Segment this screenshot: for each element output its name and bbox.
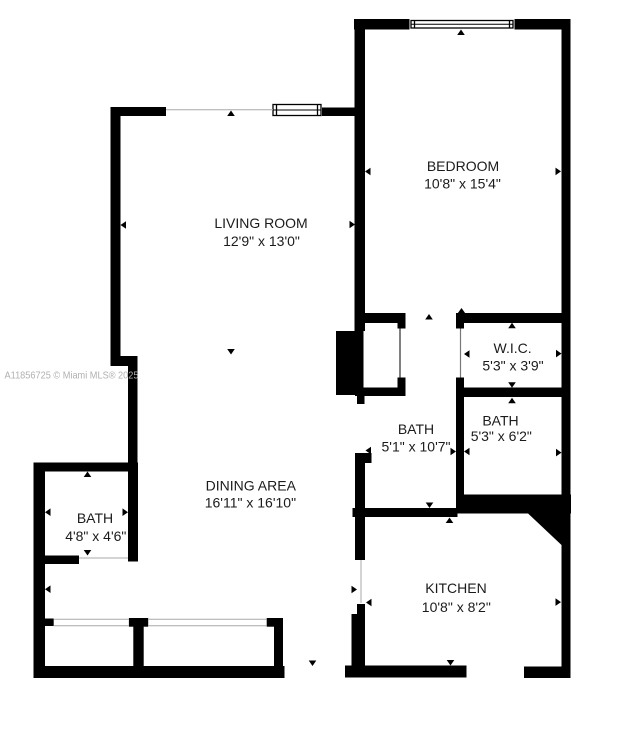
svg-text:5'3" x 3'9": 5'3" x 3'9" [482,357,543,373]
svg-text:BATH: BATH [482,413,518,429]
svg-text:DINING AREA: DINING AREA [206,478,297,494]
svg-text:5'1" x 10'7": 5'1" x 10'7" [382,439,451,455]
svg-text:12'9" x 13'0": 12'9" x 13'0" [223,233,300,249]
svg-text:10'8" x 15'4": 10'8" x 15'4" [424,176,501,192]
svg-text:BEDROOM: BEDROOM [427,158,499,174]
svg-text:W.I.C.: W.I.C. [494,340,532,356]
svg-text:16'11" x 16'10": 16'11" x 16'10" [205,495,296,511]
svg-text:LIVING ROOM: LIVING ROOM [214,215,307,231]
svg-text:4'8" x 4'6": 4'8" x 4'6" [65,528,126,544]
svg-text:5'3" x 6'2": 5'3" x 6'2" [471,428,532,444]
svg-text:A11856725 © Miami MLS® 2025: A11856725 © Miami MLS® 2025 [5,370,139,382]
svg-text:BATH: BATH [398,421,434,437]
svg-text:KITCHEN: KITCHEN [425,580,486,596]
svg-text:10'8" x 8'2": 10'8" x 8'2" [422,599,491,615]
svg-text:BATH: BATH [77,510,113,526]
